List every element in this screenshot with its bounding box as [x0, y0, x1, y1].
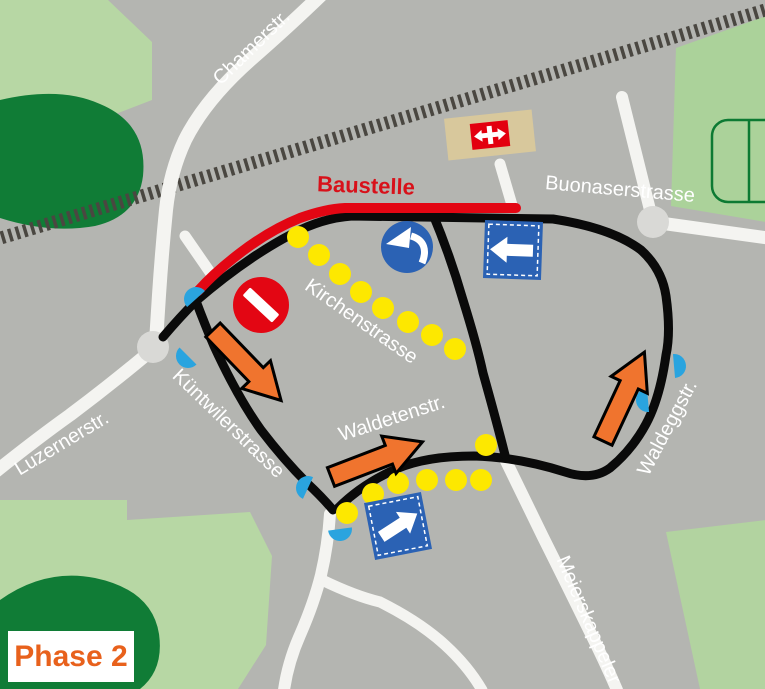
- road-meierskappelerstrasse: [506, 461, 617, 689]
- detour-dot: [336, 502, 358, 524]
- detour-dot: [308, 244, 330, 266]
- detour-dot: [329, 263, 351, 285]
- detour-dot: [470, 469, 492, 491]
- road-buonaserstrasse-north: [622, 97, 653, 222]
- detour-dot: [387, 472, 409, 494]
- turn-left-mandatory-sign: [381, 221, 433, 273]
- road-buonaserstrasse-east: [653, 222, 765, 238]
- phase-badge-text: Phase 2: [14, 640, 127, 674]
- road-stub-left-junction: [185, 236, 214, 278]
- detour-dot: [372, 297, 394, 319]
- side-street-marker: [673, 353, 687, 378]
- green-area-bottom-right: [666, 520, 765, 689]
- phase-badge: Phase 2: [8, 631, 134, 682]
- detour-dot: [445, 469, 467, 491]
- detour-dot: [421, 324, 443, 346]
- one-way-diagonal-sign: [364, 492, 432, 560]
- junction-buonaserstrasse: [637, 206, 669, 238]
- road-south-branch: [322, 580, 482, 689]
- side-street-marker: [171, 348, 196, 373]
- road-luzernerstrasse: [0, 355, 146, 473]
- train-station-icon: [444, 110, 536, 161]
- detour-dot: [475, 434, 497, 456]
- detour-dot: [416, 469, 438, 491]
- green-areas: [0, 0, 765, 689]
- no-entry-sign: [233, 277, 289, 333]
- construction-detour-map: Chamerstr. Buonaserstrasse Kirchenstrass…: [0, 0, 765, 689]
- road-stub-station: [500, 164, 512, 205]
- detour-dot: [287, 226, 309, 248]
- road-south-from-bend: [284, 514, 330, 689]
- detour-dot: [397, 311, 419, 333]
- direction-arrow-kuentwilerstrasse: [199, 316, 296, 414]
- detour-dot: [350, 281, 372, 303]
- map-canvas: [0, 0, 765, 689]
- detour-dot: [444, 338, 466, 360]
- detour-dots: [287, 226, 497, 524]
- one-way-left-sign: [483, 220, 543, 280]
- direction-arrow-waldeggstrasse: [585, 344, 663, 450]
